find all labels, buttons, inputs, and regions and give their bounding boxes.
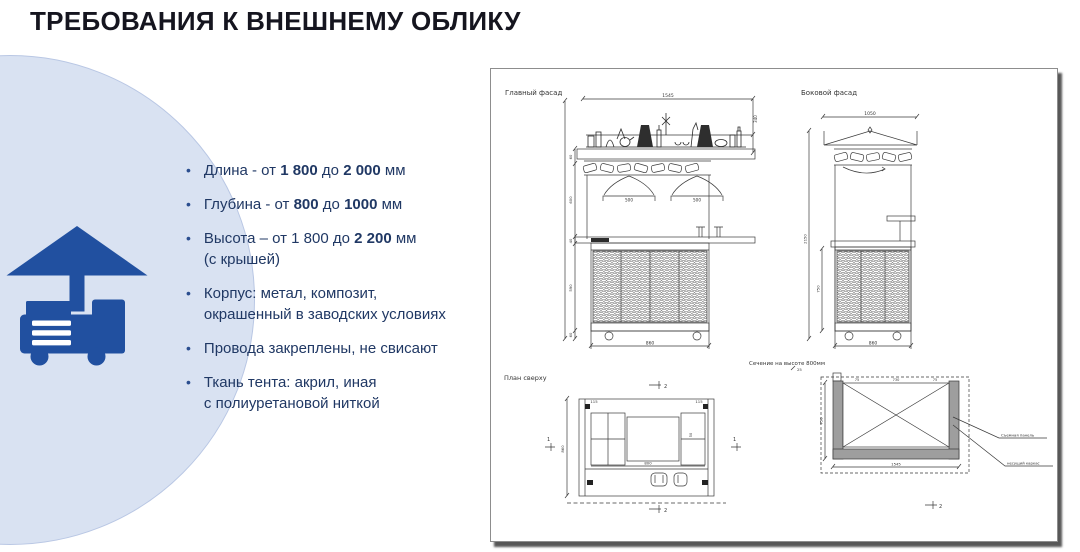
requirement-text: Провода закреплены, не свисают (204, 338, 438, 359)
bullet-icon: • (186, 283, 191, 325)
main-left-dim-1: 60 (568, 154, 573, 159)
requirement-text: Ткань тента: акрил, иная с полиуретаново… (204, 372, 380, 414)
main-left-dim-5: 60 (568, 332, 573, 337)
requirements-list: •Длина - от 1 800 до 2 000 мм•Глубина - … (186, 160, 501, 427)
plan-wall-right: 115 (695, 399, 703, 404)
requirement-text: Длина - от 1 800 до 2 000 мм (204, 160, 406, 181)
lamp-shades (603, 176, 723, 201)
plan-view-drawing: План сверху 2 115 115 50 800 (504, 374, 741, 514)
lamp2-dim: 500 (693, 198, 701, 203)
side-dim-top: 1050 (864, 111, 876, 117)
section-label: Сечение на высоте 800мм (749, 361, 825, 367)
main-dim-right: 340 (753, 115, 758, 123)
plan-mark-left: 1 (547, 437, 550, 443)
trade-cart-icon (2, 221, 152, 366)
bullet-icon: • (186, 372, 191, 414)
requirement-item: •Провода закреплены, не свисают (186, 338, 501, 359)
section-dim-bottom: 1545 (891, 462, 901, 467)
plan-label: План сверху (504, 374, 547, 382)
section-tab-dim: 25 (797, 367, 802, 372)
requirement-item: •Ткань тента: акрил, иная с полиуретанов… (186, 372, 501, 414)
side-dim-bottom: 860 (869, 341, 878, 347)
plan-depth: 860 (560, 445, 565, 453)
decor-items (586, 113, 746, 147)
lamp1-dim: 500 (625, 198, 633, 203)
side-facade-drawing: Боковой фасад 1050 (801, 89, 919, 349)
requirement-text: Глубина - от 800 до 1000 мм (204, 194, 402, 215)
main-left-dim-4: 590 (568, 284, 573, 292)
main-facade-drawing: Главный фасад 1545 340 (505, 89, 758, 349)
slide: ТРЕБОВАНИЯ К ВНЕШНЕМУ ОБЛИКУ •Длина - от… (0, 0, 1080, 552)
plan-cell-right: 50 (689, 433, 693, 437)
requirement-text: Корпус: метал, композит, окрашенный в за… (204, 283, 446, 325)
requirement-text: Высота – от 1 800 до 2 200 мм (с крышей) (204, 228, 417, 270)
bullet-icon: • (186, 160, 191, 181)
requirement-item: •Глубина - от 800 до 1000 мм (186, 194, 501, 215)
section-dim-left: 750 (819, 417, 824, 425)
requirement-item: •Высота – от 1 800 до 2 200 мм (с крышей… (186, 228, 501, 270)
bullet-icon: • (186, 338, 191, 359)
side-dim-height: 2150 (803, 234, 808, 244)
main-left-dim-3: 40 (568, 238, 573, 243)
main-dim-bottom: 860 (646, 341, 655, 347)
main-dim-top: 1545 (662, 93, 674, 99)
bullet-icon: • (186, 194, 191, 215)
plan-wall-left: 115 (590, 399, 598, 404)
technical-drawing: Главный фасад 1545 340 (491, 69, 1057, 541)
main-left-dim-2: 600 (568, 196, 573, 204)
section-mark-bottom: 2 (939, 504, 942, 510)
plan-inner-width: 800 (644, 461, 652, 466)
section-top-center: 730 (893, 378, 900, 382)
requirement-item: •Длина - от 1 800 до 2 000 мм (186, 160, 501, 181)
side-facade-label: Боковой фасад (801, 89, 857, 97)
plan-mark-top: 2 (664, 384, 667, 390)
section-annotation-2: несущий каркас (1007, 461, 1040, 466)
section-annotation-1: Съемная панель (1001, 433, 1035, 438)
main-bunting (583, 163, 699, 173)
section-view-drawing: Сечение на высоте 800мм 25 75 730 75 750 (749, 361, 1053, 510)
side-dim-inner: 750 (816, 285, 821, 293)
plan-mark-bottom: 2 (664, 508, 667, 514)
main-facade-label: Главный фасад (505, 89, 562, 97)
side-bunting (834, 152, 912, 162)
requirement-item: •Корпус: метал, композит, окрашенный в з… (186, 283, 501, 325)
page-title: ТРЕБОВАНИЯ К ВНЕШНЕМУ ОБЛИКУ (30, 6, 521, 37)
section-top-right: 75 (933, 378, 937, 382)
section-top-left: 75 (855, 378, 859, 382)
bullet-icon: • (186, 228, 191, 270)
plan-mark-right: 1 (733, 437, 736, 443)
drawing-panel: Главный фасад 1545 340 (490, 68, 1058, 542)
